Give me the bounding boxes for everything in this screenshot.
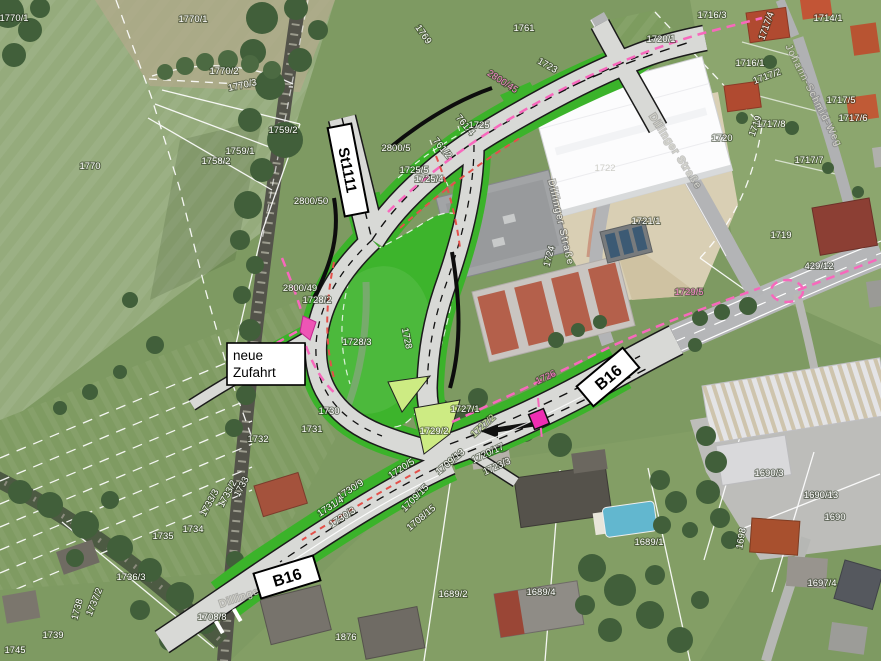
parcel-label: 1770/1 xyxy=(178,14,207,25)
parcel-label: 1717/6 xyxy=(838,113,867,124)
parcel-label: 1721/1 xyxy=(631,216,660,227)
parcel-label: 1729/2 xyxy=(419,426,448,437)
note-line-1: neue xyxy=(233,348,263,363)
note-box-neue-zufahrt: neue Zufahrt xyxy=(227,343,305,385)
house xyxy=(850,22,880,55)
parcel-label: 1727/1 xyxy=(450,404,479,415)
parcel-label: 1758/2 xyxy=(201,156,230,167)
aerial-plan-map: Dillinger StraßeDillinger StraßeDillinge… xyxy=(0,0,881,661)
parcel-label: 1717/7 xyxy=(794,155,823,166)
parcel-label: 1722 xyxy=(594,163,615,174)
parcel-label: 1689/2 xyxy=(438,589,467,600)
note-line-2: Zufahrt xyxy=(233,365,276,380)
parcel-label: 1690 xyxy=(824,512,845,523)
parcel-label: 1729/5 xyxy=(674,287,703,298)
parcel-label: 1728/3 xyxy=(342,337,371,348)
parcel-label: 1690/3 xyxy=(754,468,783,479)
map-canvas: Dillinger StraßeDillinger StraßeDillinge… xyxy=(0,0,881,661)
parcel-label: 1876 xyxy=(335,632,356,643)
parcel-label: 1689/1 xyxy=(634,537,663,548)
parcel-label: 1716/3 xyxy=(697,10,726,21)
parcel-label: 1732 xyxy=(247,434,268,445)
parcel-label: 1739 xyxy=(42,630,63,641)
parcel-label: 1725/4 xyxy=(414,174,443,185)
parcel-label: 1717/5 xyxy=(826,95,855,106)
shed xyxy=(2,590,40,623)
parcel-label: 1708/8 xyxy=(197,612,226,623)
parcel-label: 1736/3 xyxy=(116,572,145,583)
parcel-label: 1759/2 xyxy=(268,125,297,136)
parcel-label: 429/12 xyxy=(804,261,833,272)
house xyxy=(828,622,868,655)
parcel-label: 1770/2 xyxy=(209,66,238,77)
parcel-label: 1717/8 xyxy=(756,119,785,130)
parcel-label: 1697/4 xyxy=(807,578,836,589)
parcel-label: 1734 xyxy=(182,524,203,535)
parcel-label: 1770 xyxy=(79,161,100,172)
parcel-label: 1690/13 xyxy=(804,490,838,501)
parcel-label: 1770/1 xyxy=(0,13,29,24)
parcel-label: 2800/5 xyxy=(381,143,410,154)
house xyxy=(750,518,800,555)
parcel-label: 1745 xyxy=(4,645,25,656)
parcel-label: 1725 xyxy=(468,120,489,131)
parcel-label: 1735 xyxy=(152,531,173,542)
parcel-label: 1730 xyxy=(318,406,339,417)
parcel-label: 1761 xyxy=(513,23,534,34)
parcel-label: 2800/50 xyxy=(294,196,328,207)
parcel-label: 1689/4 xyxy=(526,587,555,598)
parcel-label: 1719 xyxy=(770,230,791,241)
parcel-label: 1731 xyxy=(301,424,322,435)
parcel-label: 1720 xyxy=(711,133,732,144)
parcel-label: 2800/49 xyxy=(283,283,317,294)
parcel-label: 1716/1 xyxy=(735,58,764,69)
parcel-label: 1714/1 xyxy=(813,13,842,24)
parcel-label: 1728/2 xyxy=(302,295,331,306)
parcel-label: 1720/1 xyxy=(646,34,675,45)
house-dark-red xyxy=(812,198,877,255)
